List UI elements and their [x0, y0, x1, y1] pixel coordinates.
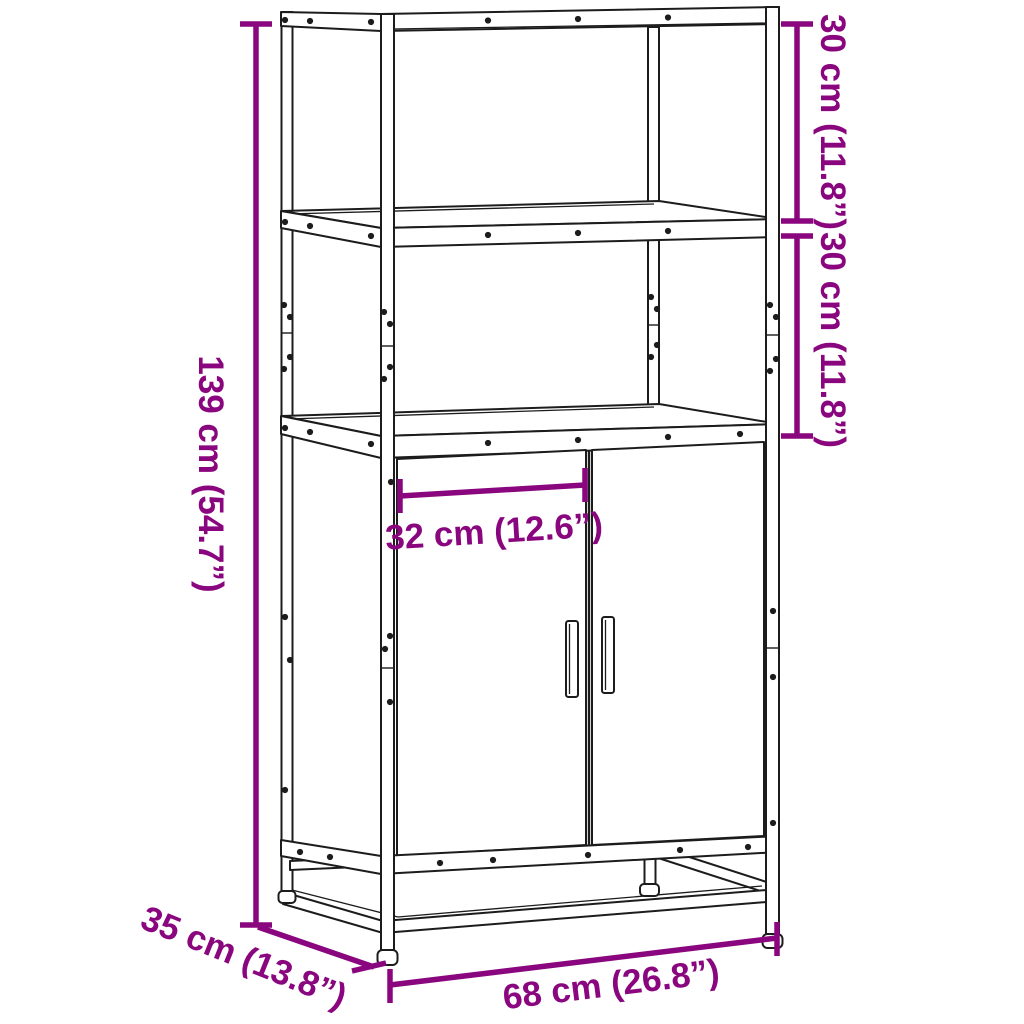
dimension-lower-shelf-height: 30 cm (11.8”): [781, 232, 852, 448]
middle-shelf: [281, 201, 779, 247]
back-right-foot: [640, 884, 659, 896]
dimension-label-overall-width: 68 cm (26.8”): [501, 952, 722, 1017]
back-left-post: [282, 12, 293, 893]
dimension-cap: [352, 963, 386, 971]
dimension-overall-height: 139 cm (54.7”): [191, 24, 272, 925]
cabinet-doors: [397, 442, 764, 856]
right-door: [592, 442, 764, 845]
top-shelf-frame: [281, 7, 779, 31]
dimension-overall-width: 68 cm (26.8”): [390, 922, 777, 1017]
dimension-label-upper-shelf-height: 30 cm (11.8”): [813, 14, 852, 230]
dimension-diagram: 139 cm (54.7”) 30 cm (11.8”) 30 cm (11.8…: [0, 0, 1024, 1024]
right-door-handle: [602, 617, 614, 693]
front-right-post: [766, 7, 779, 936]
furniture-illustration: 139 cm (54.7”) 30 cm (11.8”) 30 cm (11.8…: [0, 0, 1024, 1024]
left-door-handle: [566, 621, 578, 697]
back-left-foot: [279, 891, 296, 903]
dimension-label-depth: 35 cm (13.8”): [135, 899, 352, 1017]
dimension-label-lower-shelf-height: 30 cm (11.8”): [813, 232, 852, 448]
dimension-upper-shelf-height: 30 cm (11.8”): [781, 14, 852, 230]
dimension-label-overall-height: 139 cm (54.7”): [191, 355, 230, 592]
